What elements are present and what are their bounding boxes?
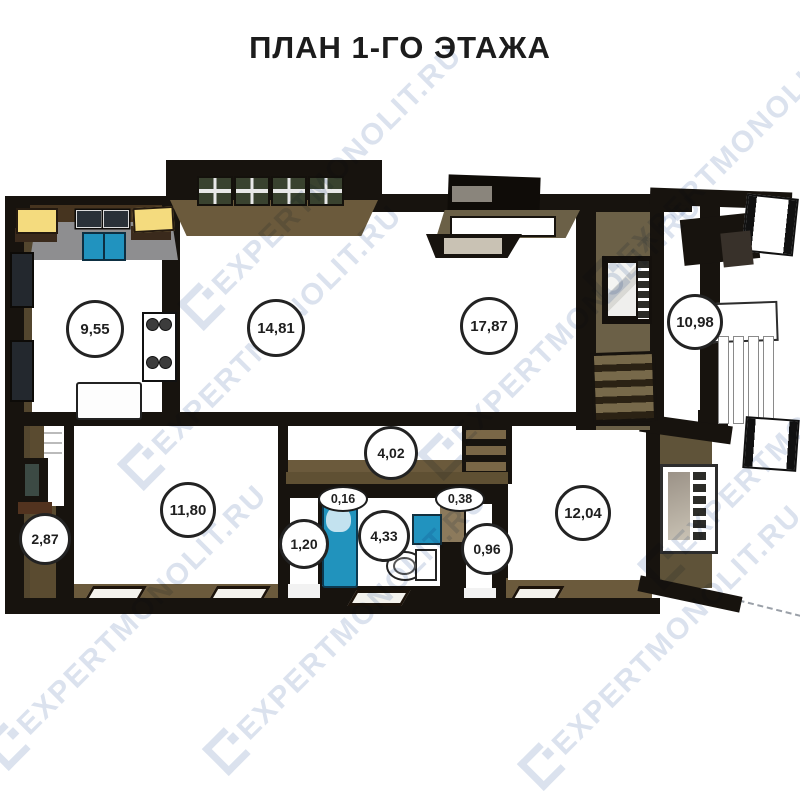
- area-label-closet-016: 0,16: [318, 486, 368, 512]
- left-wall-window: [10, 340, 34, 402]
- floor-plan-page: ПЛАН 1-ГО ЭТАЖА EXPERTMONOLIT.RU EXPERTM…: [0, 0, 800, 800]
- ceiling-light-slot: [450, 216, 556, 237]
- area-label-room-1481: 14,81: [247, 299, 305, 357]
- balcony-bracket: [720, 231, 753, 268]
- area-label-passage: 1,20: [279, 519, 329, 569]
- kitchen-window-left: [16, 208, 58, 234]
- area-label-bathroom: 4,33: [358, 510, 410, 562]
- area-label-hallway: 4,02: [364, 426, 418, 480]
- bay-pane: [234, 176, 270, 206]
- area-label-kitchen: 9,55: [66, 300, 124, 358]
- kitchen-upper-glass: [76, 210, 102, 228]
- ceiling-vent: [452, 186, 492, 202]
- bottom-wall: [5, 598, 660, 614]
- kitchen-sink-left-basin: [82, 232, 105, 261]
- radiator: [591, 351, 657, 423]
- railing-slat: [718, 336, 729, 424]
- fridge: [76, 382, 142, 420]
- storage-mirror-glass: [25, 464, 39, 496]
- area-label-room-1180: 11,80: [160, 482, 216, 538]
- storage-stair-line: [44, 432, 62, 434]
- area-label-room-1787: 17,87: [460, 297, 518, 355]
- storage-stair-line: [44, 452, 62, 454]
- area-label-balcony: 10,98: [667, 294, 723, 350]
- ceiling-panel: [444, 238, 502, 254]
- railing-slat: [733, 336, 744, 424]
- railing-slat: [748, 336, 759, 424]
- stove-burner: [146, 318, 159, 331]
- storage-stair-line: [44, 442, 62, 444]
- kitchen-sink-right-basin: [103, 232, 126, 261]
- page-title: ПЛАН 1-ГО ЭТАЖА: [0, 30, 800, 66]
- railing-slat: [763, 336, 774, 424]
- kitchen-upper-glass: [103, 210, 129, 228]
- area-label-storage: 2,87: [19, 513, 71, 565]
- kitchen-window-right: [132, 206, 174, 233]
- left-wall-window: [10, 252, 34, 308]
- wardrobe-drawer: [466, 462, 506, 471]
- stove-burner: [146, 356, 159, 369]
- stove-burner: [159, 356, 172, 369]
- stove-burner: [159, 318, 172, 331]
- area-label-room-1204: 12,04: [555, 485, 611, 541]
- area-label-closet-038: 0,38: [435, 486, 485, 512]
- area-label-toilet: 0,96: [461, 523, 513, 575]
- bay-pane: [197, 176, 233, 206]
